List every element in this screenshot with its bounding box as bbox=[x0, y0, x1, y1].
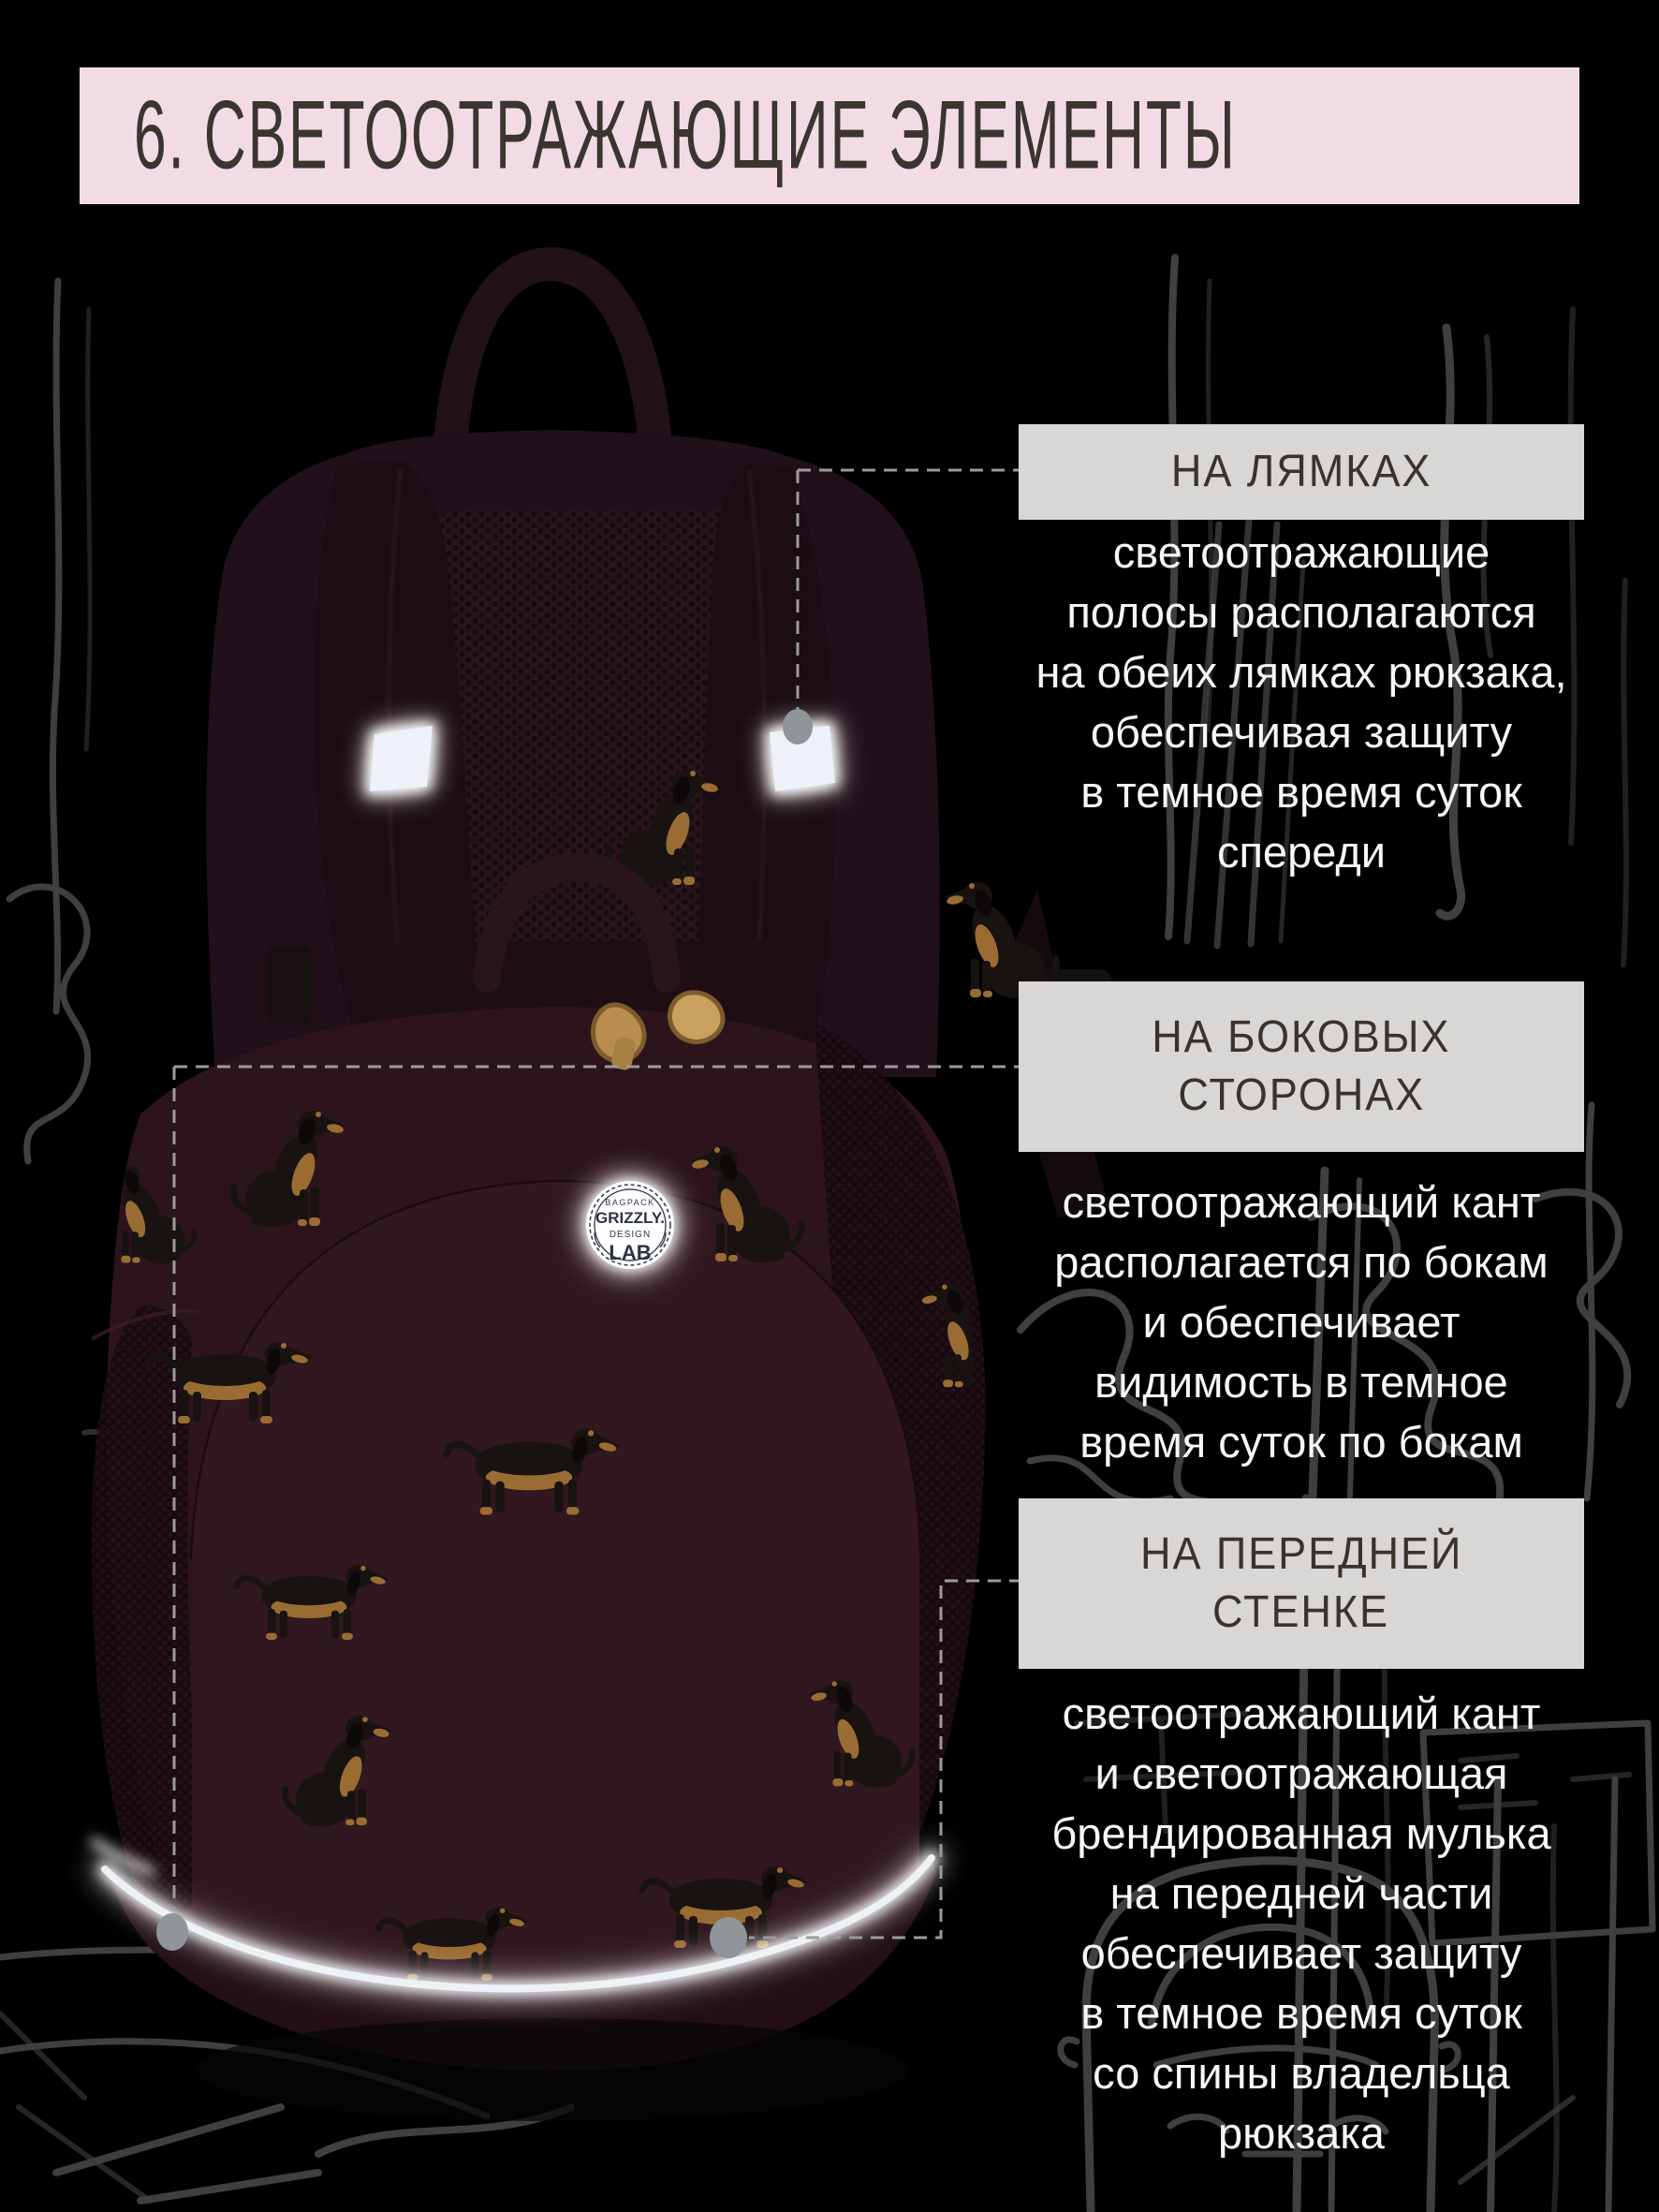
body-line: рюкзака bbox=[1011, 2103, 1592, 2163]
logo-text-bottom: LAB bbox=[609, 1241, 651, 1264]
callout-dot-front bbox=[710, 1917, 747, 1958]
body-line: время суток по бокам bbox=[1011, 1412, 1592, 1472]
logo-text-brand: GRIZZLY. bbox=[595, 1209, 665, 1227]
callout-dot-sides bbox=[156, 1913, 188, 1951]
body-line: в темное время суток bbox=[1011, 762, 1592, 822]
infographic-page: BAGPACK GRIZZLY. DESIGN LAB 6. СВЕТООТ bbox=[0, 0, 1659, 2212]
body-line: полосы располагаются bbox=[1011, 582, 1592, 642]
page-title: 6. СВЕТООТРАЖАЮЩИЕ ЭЛЕМЕНТЫ bbox=[134, 81, 1237, 192]
section-label-sides: НА БОКОВЫХ СТОРОНАХ bbox=[1019, 981, 1584, 1152]
callout-dot-straps bbox=[783, 709, 813, 745]
logo-text-top: BAGPACK bbox=[605, 1198, 654, 1207]
strap-buckle-left bbox=[267, 946, 312, 1025]
header-bar: 6. СВЕТООТРАЖАЮЩИЕ ЭЛЕМЕНТЫ bbox=[80, 67, 1579, 204]
carry-handle bbox=[449, 264, 655, 454]
body-line: обеспечивая защиту bbox=[1011, 702, 1592, 762]
body-line: светоотражающие bbox=[1011, 523, 1592, 582]
body-line: и светоотражающая bbox=[1011, 1744, 1592, 1804]
label-line: НА ПЕРЕДНЕЙ bbox=[1140, 1526, 1462, 1584]
body-line: располагается по бокам bbox=[1011, 1232, 1592, 1292]
body-line: видимость в темное bbox=[1011, 1352, 1592, 1412]
body-line: светоотражающий кант bbox=[1011, 1684, 1592, 1744]
label-line: НА БОКОВЫХ bbox=[1152, 1009, 1450, 1067]
reflective-patch-left bbox=[365, 721, 436, 796]
label-line: НА ЛЯМКАХ bbox=[1171, 443, 1431, 501]
label-line: СТОРОНАХ bbox=[1178, 1067, 1425, 1125]
body-line: и обеспечивает bbox=[1011, 1292, 1592, 1352]
section-body-straps: светоотражающие полосы располагаются на … bbox=[1011, 523, 1592, 882]
section-label-straps: НА ЛЯМКАХ bbox=[1019, 424, 1584, 520]
section-body-sides: светоотражающий кант располагается по бо… bbox=[1011, 1172, 1592, 1472]
logo-text-mid: DESIGN bbox=[609, 1230, 651, 1240]
label-line: СТЕНКЕ bbox=[1213, 1584, 1390, 1642]
body-line: в темное время суток bbox=[1011, 1983, 1592, 2043]
body-line: брендированная мулька bbox=[1011, 1804, 1592, 1864]
body-line: на передней части bbox=[1011, 1864, 1592, 1924]
body-line: светоотражающий кант bbox=[1011, 1172, 1592, 1232]
body-line: со спины владельца bbox=[1011, 2043, 1592, 2103]
body-line: спереди bbox=[1011, 822, 1592, 882]
section-body-front: светоотражающий кант и светоотражающая б… bbox=[1011, 1684, 1592, 2163]
section-label-front: НА ПЕРЕДНЕЙ СТЕНКЕ bbox=[1019, 1498, 1584, 1669]
body-line: на обеих лямках рюкзака, bbox=[1011, 642, 1592, 702]
grizzly-logo-badge: BAGPACK GRIZZLY. DESIGN LAB bbox=[581, 1176, 679, 1274]
body-line: обеспечивает защиту bbox=[1011, 1924, 1592, 1983]
